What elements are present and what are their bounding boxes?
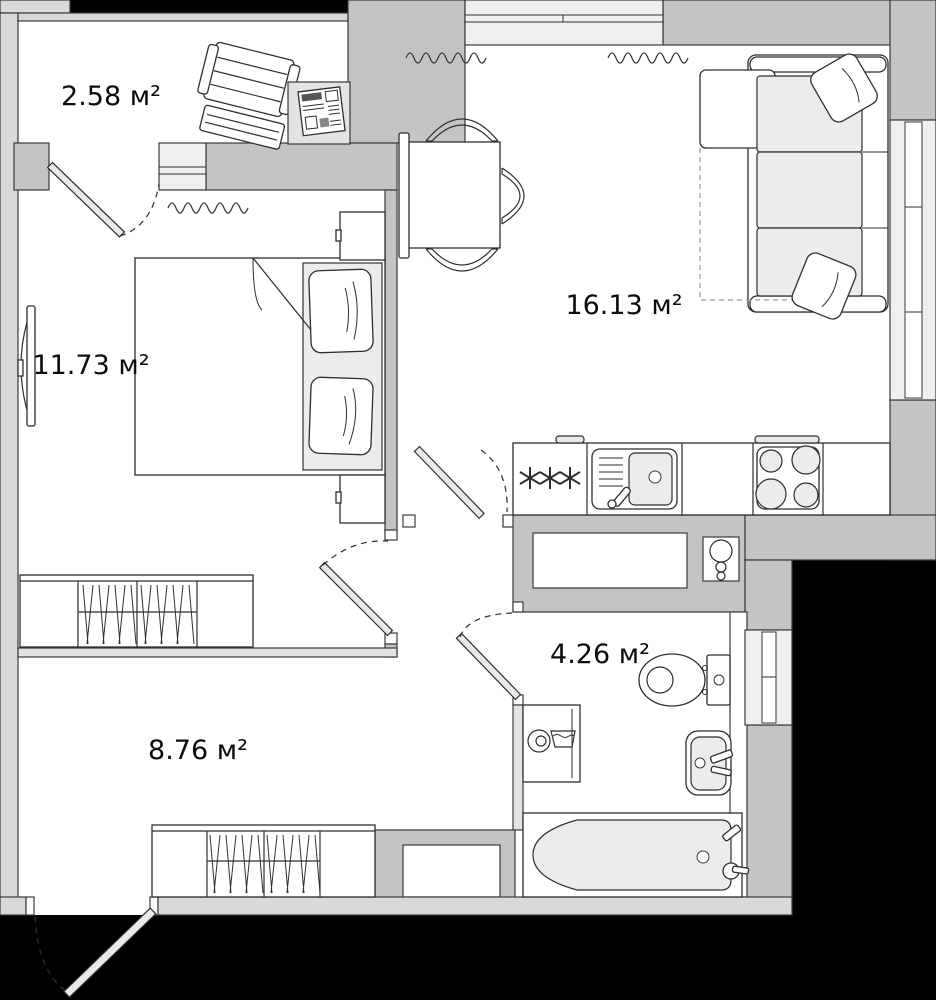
bathroom-area-label: 4.26 м² (550, 639, 650, 670)
hallway-area-label: 8.76 м² (148, 735, 248, 766)
fridge-icon (520, 467, 580, 489)
living-east-window (890, 120, 936, 400)
toilet-icon (639, 654, 730, 706)
vent-icon (703, 537, 739, 581)
pillow-icon (309, 377, 374, 455)
bedroom-area-label: 11.73 м² (32, 350, 149, 381)
floor-plan-canvas: 2.58 м² (0, 0, 936, 1000)
kitchen-sink-icon (592, 449, 677, 509)
kitchen-counter (513, 436, 890, 515)
washbasin-icon (686, 731, 733, 795)
wardrobe-icon (20, 575, 253, 647)
nightstand-icon (336, 475, 385, 523)
living-north-window (465, 0, 663, 45)
balcony-area-label: 2.58 м² (61, 81, 161, 112)
living-area-label: 16.13 м² (565, 290, 682, 321)
bathroom-east-window (745, 630, 792, 725)
washing-machine-icon (523, 705, 580, 782)
floor-plan: 2.58 м² (0, 0, 936, 1000)
bench-icon (399, 133, 409, 258)
newspaper-icon (298, 87, 345, 136)
bed-icon (135, 258, 385, 475)
bathtub-icon (523, 813, 749, 897)
pillow-icon (309, 269, 374, 353)
stove-icon (756, 446, 820, 509)
nightstand-icon (336, 212, 385, 260)
side-table-icon (288, 82, 350, 144)
balcony-window (159, 143, 206, 190)
wardrobe-icon (152, 825, 375, 897)
